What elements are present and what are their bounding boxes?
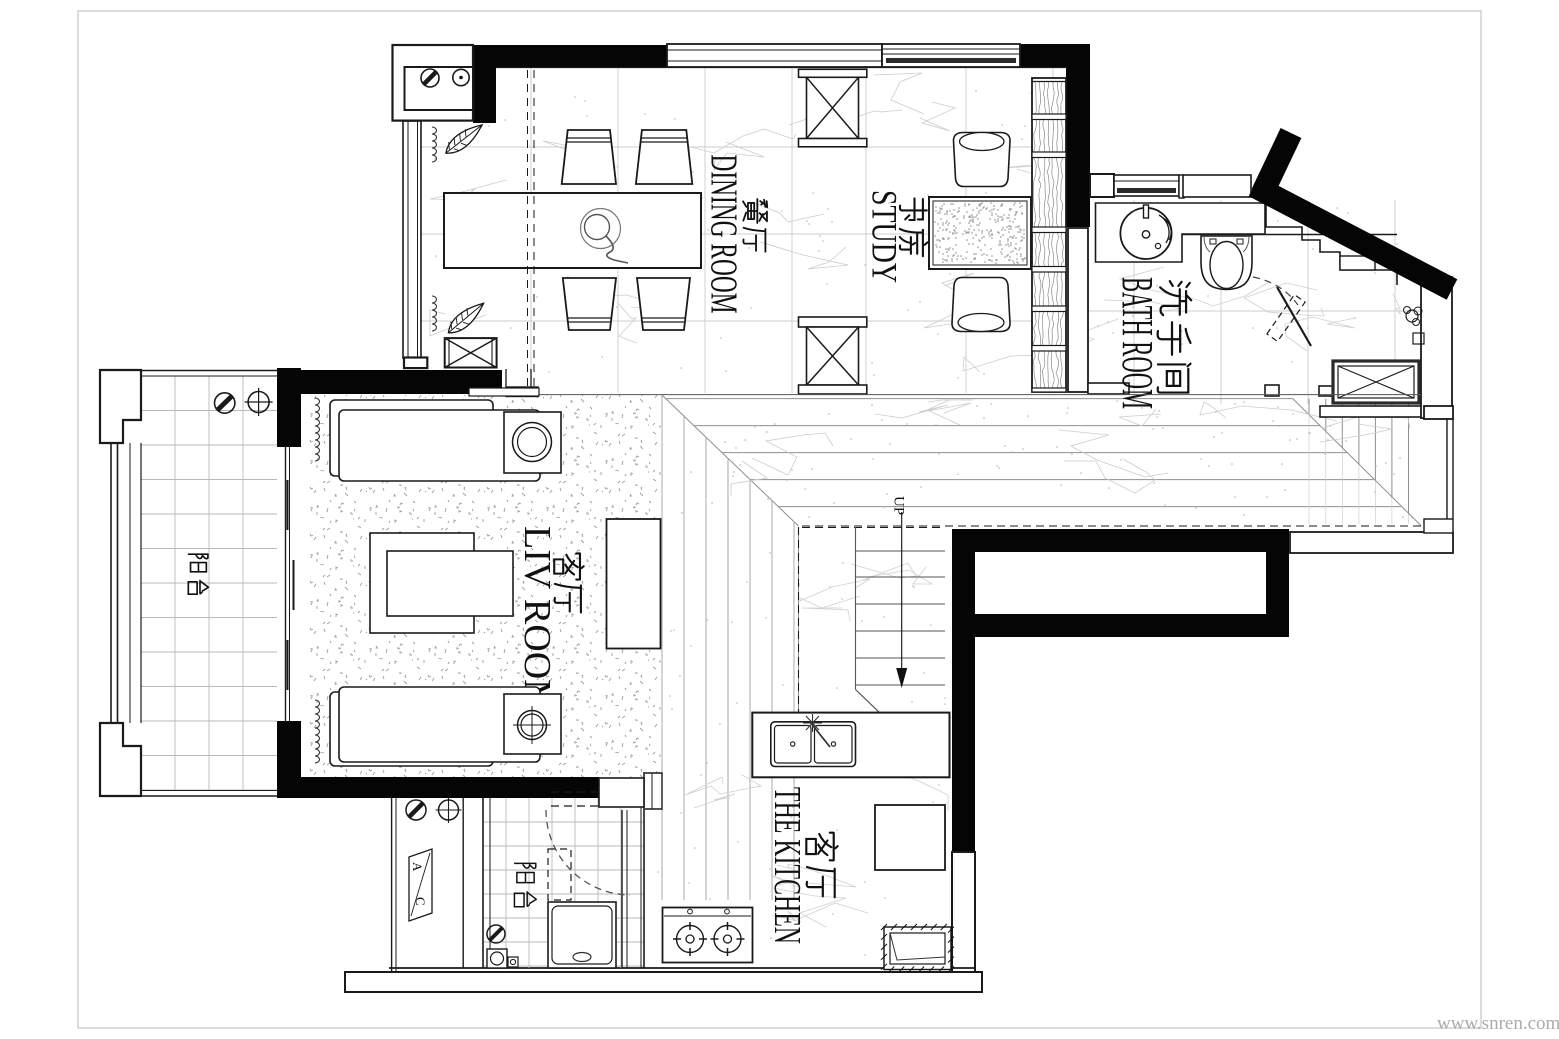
svg-text:A: A bbox=[410, 862, 425, 872]
svg-text:THE KITCHEN: THE KITCHEN bbox=[766, 787, 808, 944]
svg-text:www.snren.com: www.snren.com bbox=[1437, 1013, 1559, 1034]
svg-text:BATH ROOM: BATH ROOM bbox=[1113, 277, 1162, 409]
svg-text:STUDY: STUDY bbox=[865, 190, 905, 283]
svg-text:DINING ROOM: DINING ROOM bbox=[703, 155, 745, 314]
svg-text:LIV ROOM: LIV ROOM bbox=[516, 526, 558, 713]
svg-text:C: C bbox=[413, 897, 428, 906]
svg-text:UP: UP bbox=[891, 496, 907, 515]
